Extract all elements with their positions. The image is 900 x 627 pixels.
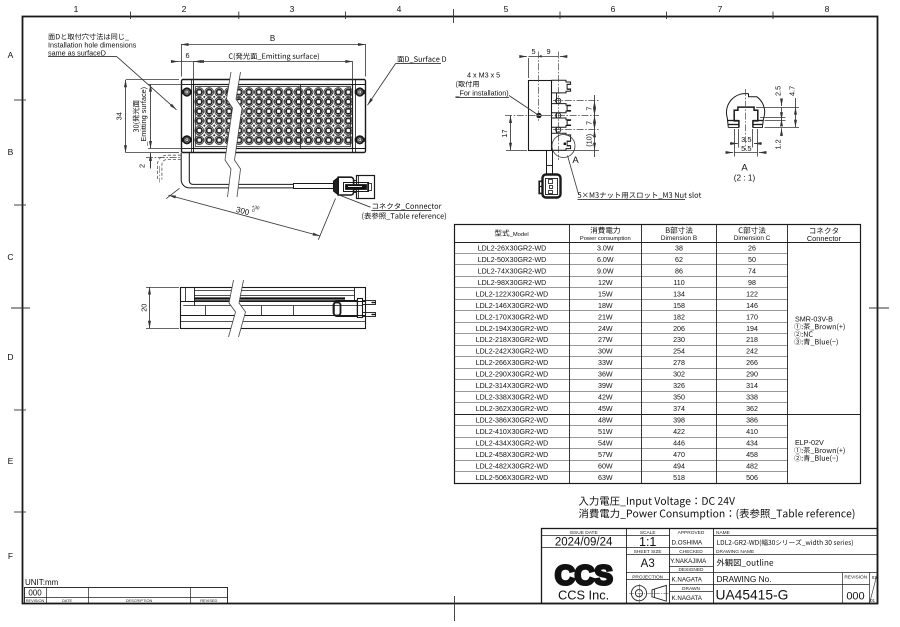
- svg-text:15W: 15W: [598, 290, 613, 298]
- svg-text:3.5: 3.5: [741, 135, 751, 144]
- svg-text:20: 20: [139, 304, 148, 312]
- svg-text:1.2: 1.2: [774, 139, 783, 149]
- svg-text:146: 146: [746, 302, 758, 310]
- svg-text:E: E: [8, 456, 14, 466]
- svg-text:APPROVED: APPROVED: [678, 530, 705, 536]
- svg-text:266: 266: [746, 359, 758, 367]
- svg-text:ISSUE DATE: ISSUE DATE: [570, 530, 598, 536]
- svg-text:8: 8: [825, 4, 830, 14]
- svg-text:6.0W: 6.0W: [597, 256, 614, 264]
- svg-text:4 x M3 x 5: 4 x M3 x 5: [467, 71, 500, 80]
- svg-text:LDL2-194X30GR2-WD: LDL2-194X30GR2-WD: [476, 325, 549, 333]
- svg-text:CCS: CCS: [555, 560, 613, 591]
- svg-text:1:1: 1:1: [639, 535, 656, 549]
- svg-text:01: 01: [872, 575, 877, 580]
- svg-text:7: 7: [584, 107, 593, 111]
- svg-text:110: 110: [673, 279, 684, 287]
- svg-text:434: 434: [746, 440, 758, 448]
- svg-text:458: 458: [746, 451, 758, 459]
- svg-text:51W: 51W: [598, 428, 613, 436]
- svg-text:30W: 30W: [598, 348, 613, 356]
- svg-text:LDL2-122X30GR2-WD: LDL2-122X30GR2-WD: [476, 290, 549, 298]
- svg-text:LDL2-146X30GR2-WD: LDL2-146X30GR2-WD: [476, 302, 549, 310]
- svg-text:_For installation): _For installation): [455, 88, 509, 97]
- svg-text:NAME: NAME: [716, 530, 730, 536]
- svg-text:494: 494: [673, 463, 685, 471]
- svg-text:1: 1: [74, 4, 79, 14]
- svg-text:LDL2-386X30GR2-WD: LDL2-386X30GR2-WD: [476, 417, 549, 425]
- svg-text:REVISION: REVISION: [26, 598, 45, 603]
- svg-text:362: 362: [746, 405, 758, 413]
- svg-text:LDL2-458X30GR2-WD: LDL2-458X30GR2-WD: [476, 451, 549, 459]
- svg-text:74: 74: [748, 267, 756, 275]
- svg-text:LDL2-266X30GR2-WD: LDL2-266X30GR2-WD: [476, 359, 549, 367]
- svg-text:326: 326: [673, 382, 685, 390]
- svg-text:LDL2-434X30GR2-WD: LDL2-434X30GR2-WD: [476, 440, 549, 448]
- svg-text:Dimension B: Dimension B: [661, 235, 697, 242]
- svg-text:LDL2-410X30GR2-WD: LDL2-410X30GR2-WD: [476, 428, 549, 436]
- svg-text:D: D: [7, 352, 13, 362]
- svg-text:422: 422: [673, 428, 685, 436]
- svg-text:LDL2-362X30GR2-WD: LDL2-362X30GR2-WD: [476, 405, 549, 413]
- svg-text:26: 26: [748, 244, 756, 252]
- svg-text:5: 5: [504, 4, 509, 14]
- svg-text:(2 : 1): (2 : 1): [734, 174, 756, 183]
- svg-text:278: 278: [673, 359, 685, 367]
- svg-text:27W: 27W: [598, 336, 613, 344]
- svg-text:UA45415-G: UA45415-G: [716, 588, 789, 603]
- svg-text:2: 2: [138, 164, 147, 168]
- svg-text:LDL2-218X30GR2-WD: LDL2-218X30GR2-WD: [476, 336, 549, 344]
- svg-text:D.OSHIMA: D.OSHIMA: [672, 540, 703, 547]
- svg-text:446: 446: [673, 440, 685, 448]
- svg-text:SHEET SIZE: SHEET SIZE: [634, 549, 662, 555]
- svg-text:same as surfaceD: same as surfaceD: [48, 48, 106, 57]
- svg-text:38: 38: [675, 244, 683, 252]
- svg-text:5: 5: [531, 47, 535, 56]
- svg-text:REVISED: REVISED: [200, 598, 217, 603]
- svg-text:LDL2-338X30GR2-WD: LDL2-338X30GR2-WD: [476, 394, 549, 402]
- svg-text:60W: 60W: [598, 463, 613, 471]
- svg-text:Y.NAKAJIMA: Y.NAKAJIMA: [670, 558, 707, 565]
- svg-text:206: 206: [673, 325, 685, 333]
- svg-text:UNIT:mm: UNIT:mm: [25, 578, 59, 587]
- svg-text:A: A: [741, 163, 748, 174]
- svg-text:36W: 36W: [598, 371, 613, 379]
- svg-text:338: 338: [746, 394, 758, 402]
- svg-text:33W: 33W: [598, 359, 613, 367]
- svg-text:34: 34: [115, 112, 124, 120]
- svg-text:230: 230: [673, 336, 685, 344]
- svg-text:182: 182: [673, 313, 685, 321]
- svg-text:K.NAGATA: K.NAGATA: [672, 595, 703, 602]
- svg-text:39W: 39W: [598, 382, 613, 390]
- svg-text:302: 302: [673, 371, 685, 379]
- svg-text:LDL2-50X30GR2-WD: LDL2-50X30GR2-WD: [478, 256, 547, 264]
- svg-text:LDL2-290X30GR2-WD: LDL2-290X30GR2-WD: [476, 371, 549, 379]
- svg-text:518: 518: [673, 474, 685, 482]
- svg-text:24W: 24W: [598, 325, 613, 333]
- svg-text:50: 50: [748, 256, 756, 264]
- svg-text:18W: 18W: [598, 302, 613, 310]
- svg-text:LDL2-74X30GR2-WD: LDL2-74X30GR2-WD: [478, 267, 547, 275]
- svg-text:DATE: DATE: [62, 598, 72, 603]
- svg-text:42W: 42W: [598, 394, 613, 402]
- svg-text:Power consumption: Power consumption: [580, 236, 631, 242]
- svg-text:134: 134: [673, 290, 685, 298]
- svg-text:374: 374: [673, 405, 685, 413]
- svg-text:PROJECTION: PROJECTION: [632, 575, 663, 581]
- svg-text:Dimension C: Dimension C: [734, 235, 771, 242]
- svg-text:A3: A3: [641, 558, 655, 570]
- svg-text:48W: 48W: [598, 417, 613, 425]
- svg-text:000: 000: [28, 589, 42, 598]
- svg-text:CCS Inc.: CCS Inc.: [558, 587, 609, 602]
- svg-text:DRAWING No.: DRAWING No.: [717, 574, 772, 584]
- svg-text:254: 254: [673, 348, 685, 356]
- svg-text:482: 482: [746, 463, 758, 471]
- svg-text:LDL2-314X30GR2-WD: LDL2-314X30GR2-WD: [476, 382, 549, 390]
- svg-text:DESIGNED: DESIGNED: [678, 567, 704, 573]
- svg-text:86: 86: [675, 267, 683, 275]
- svg-text:62: 62: [675, 256, 683, 264]
- svg-text:F: F: [8, 551, 13, 561]
- svg-text:LDL2-26X30GR2-WD: LDL2-26X30GR2-WD: [478, 244, 547, 252]
- svg-text:2.5: 2.5: [774, 86, 783, 96]
- svg-text:470: 470: [673, 451, 685, 459]
- svg-text:12W: 12W: [598, 279, 613, 287]
- svg-text:242: 242: [746, 348, 758, 356]
- svg-text:A: A: [8, 50, 14, 60]
- svg-text:158: 158: [673, 302, 685, 310]
- svg-text:4: 4: [397, 4, 402, 14]
- svg-text:K.NAGATA: K.NAGATA: [672, 577, 703, 584]
- svg-text:_Emitting surface): _Emitting surface): [139, 87, 148, 147]
- svg-text:_Model: _Model: [509, 232, 529, 238]
- svg-text:ELP-02V: ELP-02V: [795, 438, 824, 447]
- svg-text:9: 9: [546, 47, 550, 56]
- svg-text:DESCRIPTION: DESCRIPTION: [126, 598, 153, 603]
- svg-text:170: 170: [746, 313, 758, 321]
- svg-text:7: 7: [584, 121, 593, 125]
- svg-text:LDL2-242X30GR2-WD: LDL2-242X30GR2-WD: [476, 348, 549, 356]
- svg-text:45W: 45W: [598, 405, 613, 413]
- svg-text:REVISION: REVISION: [844, 574, 867, 580]
- svg-text:B: B: [270, 34, 275, 43]
- svg-text:350: 350: [673, 394, 685, 402]
- svg-text:122: 122: [746, 290, 758, 298]
- svg-text:SMR-03V-B: SMR-03V-B: [795, 314, 833, 323]
- svg-text:2024/09/24: 2024/09/24: [555, 537, 613, 549]
- svg-text:DRAWN: DRAWN: [682, 586, 700, 592]
- svg-text:Connector: Connector: [807, 234, 842, 243]
- svg-text:LDL2-170X30GR2-WD: LDL2-170X30GR2-WD: [476, 313, 549, 321]
- svg-text:398: 398: [673, 417, 685, 425]
- svg-text:C: C: [7, 252, 13, 262]
- svg-text:LDL2-506X30GR2-WD: LDL2-506X30GR2-WD: [476, 474, 549, 482]
- svg-text:57W: 57W: [598, 451, 613, 459]
- svg-text:218: 218: [746, 336, 758, 344]
- svg-text:B: B: [8, 147, 14, 157]
- svg-text:194: 194: [746, 325, 758, 333]
- svg-text:21W: 21W: [598, 313, 613, 321]
- svg-text:4.7: 4.7: [787, 86, 796, 96]
- svg-text:A: A: [572, 155, 579, 166]
- svg-text:6: 6: [185, 51, 189, 60]
- svg-text:98: 98: [748, 279, 756, 287]
- svg-text:LDL2-98X30GR2-WD: LDL2-98X30GR2-WD: [478, 279, 547, 287]
- svg-text:01: 01: [870, 598, 875, 603]
- svg-text:290: 290: [746, 371, 758, 379]
- svg-text:386: 386: [746, 417, 758, 425]
- svg-text:5.5: 5.5: [741, 144, 751, 153]
- svg-text:6: 6: [611, 4, 616, 14]
- svg-text:314: 314: [746, 382, 758, 390]
- svg-text:LDL2-482X30GR2-WD: LDL2-482X30GR2-WD: [476, 463, 549, 471]
- svg-text:17: 17: [500, 129, 509, 137]
- svg-text:DRAWING NAME: DRAWING NAME: [716, 549, 754, 555]
- svg-text:7: 7: [718, 4, 723, 14]
- svg-text:CHECKED: CHECKED: [679, 549, 703, 555]
- svg-text:3: 3: [290, 4, 295, 14]
- svg-text:2: 2: [182, 4, 187, 14]
- svg-text:3.0W: 3.0W: [597, 244, 614, 252]
- svg-text:9.0W: 9.0W: [597, 267, 614, 275]
- svg-text:54W: 54W: [598, 440, 613, 448]
- svg-text:63W: 63W: [598, 474, 613, 482]
- svg-text:506: 506: [746, 474, 758, 482]
- svg-text:(10): (10): [584, 134, 593, 147]
- svg-text:410: 410: [746, 428, 758, 436]
- svg-text:000: 000: [846, 590, 864, 602]
